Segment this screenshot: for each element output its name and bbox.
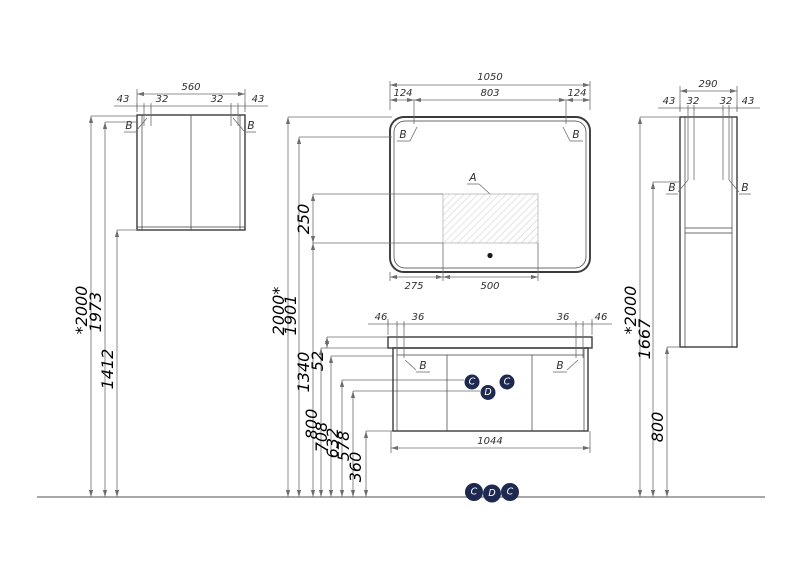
dim-label-offset: 43 [663,96,676,107]
fitting-letter: C [504,377,511,388]
dim-label-offset: 46 [595,312,608,323]
dim-label-offset: 124 [567,88,586,99]
fitting-letter: C [469,377,476,388]
dim-label-offset: 275 [404,281,423,292]
drawing-canvas: 56043323243BB*2000197314121050124803124B… [0,0,800,565]
sensor-dot [487,253,492,258]
vanity: CDC [388,337,592,431]
illuminated-zone [443,194,538,243]
height-label: 1901 [281,295,300,336]
hinge-callout: B [741,182,748,194]
fitting-letter: C [507,487,514,498]
mirror [390,117,590,272]
fitting-letter: D [488,488,495,499]
height-label: 1412 [98,349,117,390]
dim-label-offset: 43 [117,94,130,105]
dim-label-width: 1044 [477,436,502,447]
dim-label-offset: 46 [375,312,388,323]
dim-label-offset: 803 [480,88,499,99]
tall-cabinet-dimensions: 29043323243BB [658,79,760,194]
dim-label-offset: 500 [480,281,499,292]
fitting-letter: C [471,487,478,498]
vanity-dimensions: 46363646BB1044 [368,312,612,453]
wall-cabinet [137,115,245,230]
height-label: 1667 [635,318,654,360]
dim-label-offset: 36 [557,312,570,323]
technical-drawing: 56043323243BB*2000197314121050124803124B… [0,0,800,565]
dim-label-offset: 32 [720,96,733,107]
hinge-callout: B [247,120,254,132]
dim-label-width: 290 [698,79,717,90]
zone-callout: A [468,172,476,184]
dim-label-offset: 32 [687,96,700,107]
hinge-callout: B [668,182,675,194]
dim-label-offset: 43 [742,96,755,107]
left-height-dimensions: *200019731412 [72,116,137,497]
right-height-dimensions: *20001667800 [621,117,680,497]
fitting-letter: D [484,387,491,398]
hinge-callout: B [419,360,426,372]
middle-height-dimensions: 2000*1901250134052800708632578360 [269,117,480,497]
hinge-callout: B [399,129,406,141]
dim-label-offset: 36 [412,312,425,323]
tall-cabinet [680,117,737,347]
height-label: 250 [294,204,313,235]
hinge-callout: B [556,360,563,372]
dim-label-offset: 43 [252,94,265,105]
height-label: 52 [308,351,327,371]
floor-fittings: CDC [465,483,519,503]
dim-label-width: 1050 [477,72,502,83]
mirror-dimensions: 1050124803124BBA275500 [390,72,590,292]
dim-label-offset: 32 [211,94,224,105]
dim-label-offset: 124 [393,88,412,99]
dim-label-width: 560 [181,82,200,93]
height-label: 360 [346,452,365,483]
hinge-callout: B [572,129,579,141]
dim-label-offset: 32 [156,94,169,105]
height-label: 1973 [86,292,105,333]
height-label: 800 [648,412,667,443]
